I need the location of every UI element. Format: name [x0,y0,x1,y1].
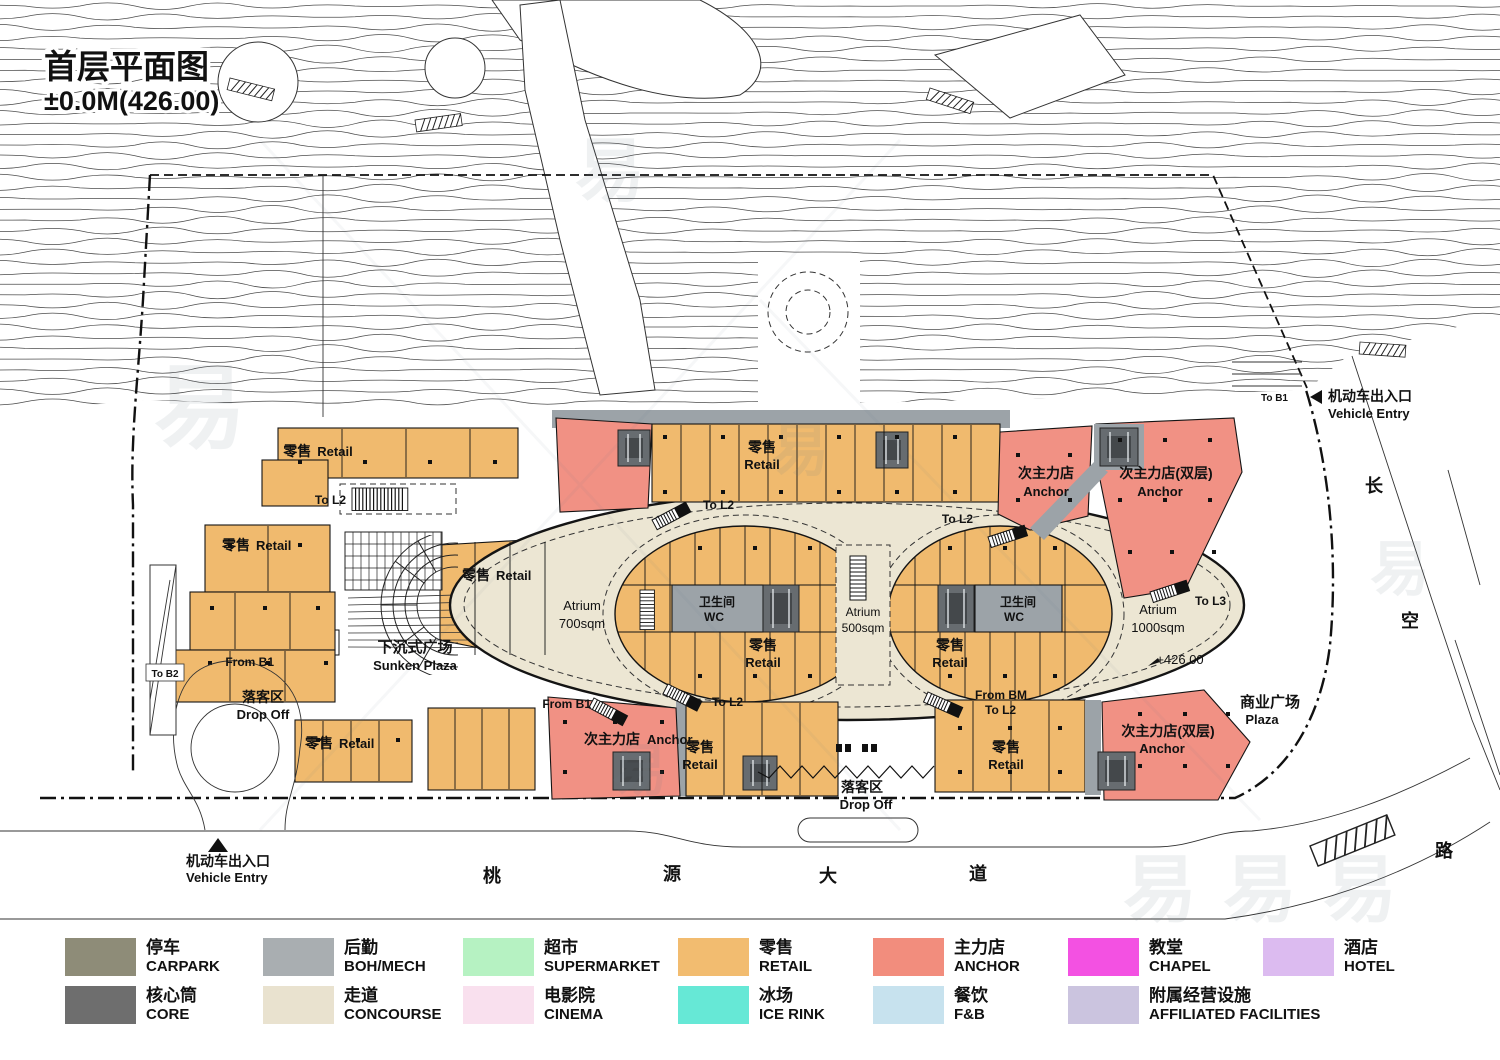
street-east-char: 空 [1401,610,1419,631]
svg-text:1000sqm: 1000sqm [1131,620,1184,635]
equip-boxes [836,744,877,752]
svg-text:Vehicle Entry: Vehicle Entry [186,870,268,885]
legend-item: 走道 CONCOURSE [263,986,442,1024]
to-l3-label: To L3 [1195,594,1226,608]
legend-item: 零售 RETAIL [678,938,812,976]
to-l2-label: To L2 [712,695,743,709]
legend-label-zh: 主力店 [954,938,1020,958]
vehicle-entry-label: 机动车出入口 [1328,388,1412,404]
svg-text:Vehicle Entry: Vehicle Entry [1328,406,1410,421]
site-plan: 首层平面图 ±0.0M(426.00) 零售Retail 零售Retail 零售… [0,0,1500,930]
legend-label-zh: 教堂 [1149,938,1211,958]
retail-label: 零售 [991,739,1020,755]
legend-swatch [65,986,136,1024]
wc-label: 卫生间 [1000,594,1036,609]
dropoff-label: 落客区 [242,689,284,705]
court-stair [850,556,866,600]
legend-label-zh: 走道 [344,986,442,1006]
street-south-char: 桃 [483,865,501,886]
street-east-char: 路 [1435,840,1454,861]
legend-item: 酒店 HOTEL [1263,938,1395,976]
svg-text:易: 易 [1323,848,1397,930]
legend-item: 餐饮 F&B [873,986,988,1024]
legend-label-zh: 核心筒 [146,986,197,1006]
retail-label: 零售 [461,567,490,583]
svg-text:易: 易 [575,132,645,210]
legend-item: 停车 CARPARK [65,938,220,976]
from-bm-label: From BM [975,688,1027,702]
legend-swatch [1068,986,1139,1024]
legend-label-en: F&B [954,1006,988,1023]
legend-label-en: BOH/MECH [344,958,426,975]
page-title: 首层平面图 [44,48,209,85]
legend-label-zh: 冰场 [759,986,825,1006]
vehicle-entry-arrow-icon [208,838,228,852]
legend-item: 核心筒 CORE [65,986,197,1024]
legend-item: 后勤 BOH/MECH [263,938,426,976]
vehicle-entry-arrow-icon [1310,390,1322,404]
svg-text:500sqm: 500sqm [842,621,885,635]
from-b1-label: From B1 [542,697,591,711]
legend-item: 冰场 ICE RINK [678,986,825,1024]
to-l2-label: To L2 [703,498,734,512]
legend-swatch [873,938,944,976]
svg-text:Drop Off: Drop Off [840,797,893,812]
legend-swatch [65,938,136,976]
legend-label-zh: 零售 [759,938,812,958]
svg-text:易: 易 [1370,536,1430,603]
legend-label-en: SUPERMARKET [544,958,660,975]
legend-label-en: CHAPEL [1149,958,1211,975]
retaining-wall-hatch [415,114,462,132]
wc-label: 卫生间 [699,594,735,609]
legend-label-en: RETAIL [759,958,812,975]
street-south-char: 源 [663,863,681,884]
legend-label-zh: 餐饮 [954,986,988,1006]
svg-text:Anchor: Anchor [1139,741,1185,756]
level-mark: +426.00 [1156,652,1203,667]
legend-swatch [1263,938,1334,976]
legend-swatch [263,986,334,1024]
to-b1-label: To B1 [1261,393,1288,404]
legend-item: 附属经营设施 AFFILIATED FACILITIES [1068,986,1320,1024]
plan-drawing: 首层平面图 ±0.0M(426.00) 零售Retail 零售Retail 零售… [0,0,1500,930]
retail-label: 零售 [304,735,333,751]
svg-text:易: 易 [154,358,246,460]
anchor-label: 次主力店 [1018,465,1074,481]
legend-item: 电影院 CINEMA [463,986,603,1024]
page-level: ±0.0M(426.00) [44,86,219,116]
island-stair [640,590,654,630]
svg-text:Anchor: Anchor [1023,484,1069,499]
svg-text:Retail: Retail [988,757,1023,772]
legend-label-en: CARPARK [146,958,220,975]
legend-swatch [678,938,749,976]
retaining-wall-hatch [1359,342,1406,357]
street-east-char: 长 [1365,476,1384,496]
plaza-label: 商业广场 [1240,693,1300,711]
legend-label-en: ANCHOR [954,958,1020,975]
legend-label-zh: 后勤 [344,938,426,958]
stairs-to-l2-nw [352,488,408,511]
atrium-label: Atrium [563,598,601,613]
svg-text:Sunken Plaza: Sunken Plaza [373,658,458,673]
sunken-plaza-label: 下沉式广场 [377,638,452,656]
svg-text:WC: WC [1004,610,1024,624]
legend-label-zh: 电影院 [544,986,603,1006]
svg-text:Retail: Retail [932,655,967,670]
anchor-label: 次主力店(双层) [1119,465,1212,481]
svg-text:Plaza: Plaza [1245,712,1279,727]
legend-label-en: CINEMA [544,1006,603,1023]
retail-cluster-south-2 [428,708,535,790]
svg-text:零售Retail: 零售Retail [282,443,352,459]
retail-cluster-west [172,525,335,702]
legend-swatch [463,938,534,976]
legend-item: 主力店 ANCHOR [873,938,1020,976]
floorplan-page: { "title": {"name": "首层平面图", "level": "±… [0,0,1500,1060]
retail-cluster-nw [262,428,518,514]
street-south-char: 道 [969,863,987,884]
legend-swatch [678,986,749,1024]
to-l2-label: To L2 [315,493,346,507]
legend-item: 超市 SUPERMARKET [463,938,660,976]
legend-label-zh: 酒店 [1344,938,1395,958]
legend: 停车 CARPARK 核心筒 CORE 后勤 BOH/MECH 走道 CONCO… [0,930,1500,1060]
legend-label-zh: 超市 [544,938,660,958]
vehicle-entry-label: 机动车出入口 [186,853,270,869]
legend-label-zh: 附属经营设施 [1149,986,1320,1006]
svg-text:Anchor: Anchor [1137,484,1183,499]
legend-label-en: ICE RINK [759,1006,825,1023]
legend-label-en: HOTEL [1344,958,1395,975]
legend-label-en: AFFILIATED FACILITIES [1149,1006,1320,1023]
legend-label-zh: 停车 [146,938,220,958]
retail-label: 零售 [282,443,311,459]
legend-swatch [263,938,334,976]
legend-label-en: CONCOURSE [344,1006,442,1023]
legend-swatch [463,986,534,1024]
atrium-label: Atrium [846,605,881,619]
retail-label: 零售 [221,537,250,553]
legend-item: 教堂 CHAPEL [1068,938,1211,976]
street-south-char: 大 [819,865,837,886]
retail-label: 零售 [935,637,964,653]
legend-label-en: CORE [146,1006,197,1023]
from-b1-label: From B1 [225,655,274,669]
to-b2-label: To B2 [151,669,178,680]
svg-text:易: 易 [1223,848,1297,930]
svg-text:Retail: Retail [682,757,717,772]
svg-text:易: 易 [771,418,829,483]
svg-text:700sqm: 700sqm [559,616,605,631]
svg-text:易: 易 [1123,848,1197,930]
svg-text:易: 易 [612,739,668,802]
legend-swatch [1068,938,1139,976]
retaining-wall-hatch [926,88,973,114]
svg-text:Drop Off: Drop Off [237,707,290,722]
to-l2-label: To L2 [985,703,1016,717]
svg-text:零售Retail: 零售Retail [221,537,291,553]
retail-label: 零售 [748,637,777,653]
legend-swatch [873,986,944,1024]
atrium-label: Atrium [1139,602,1177,617]
